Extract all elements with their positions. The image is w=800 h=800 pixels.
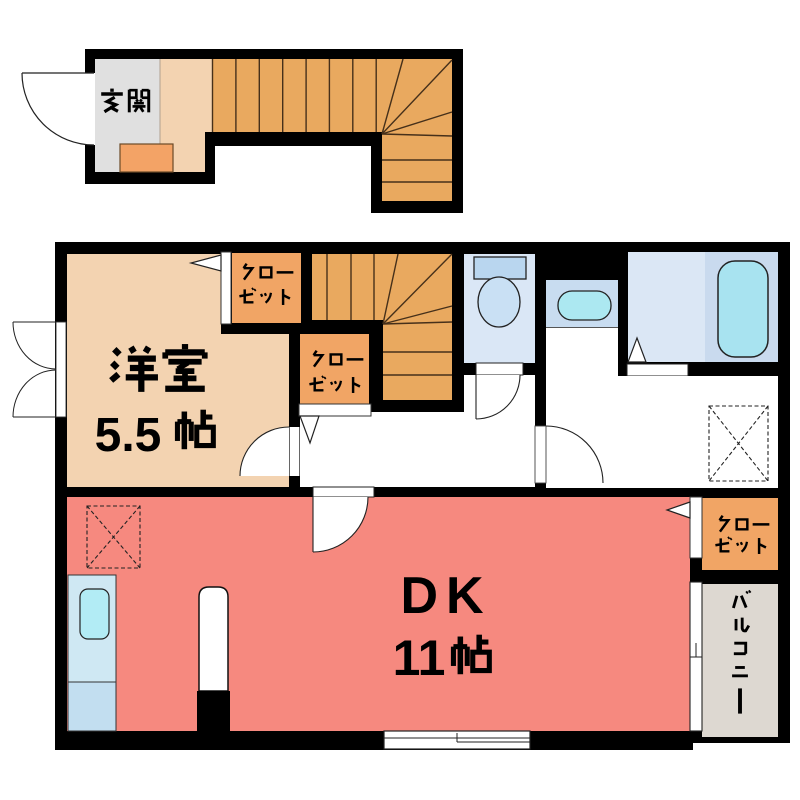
svg-text:DK: DK (400, 567, 491, 625)
svg-text:11: 11 (393, 630, 446, 686)
svg-text:5.5: 5.5 (95, 409, 162, 462)
